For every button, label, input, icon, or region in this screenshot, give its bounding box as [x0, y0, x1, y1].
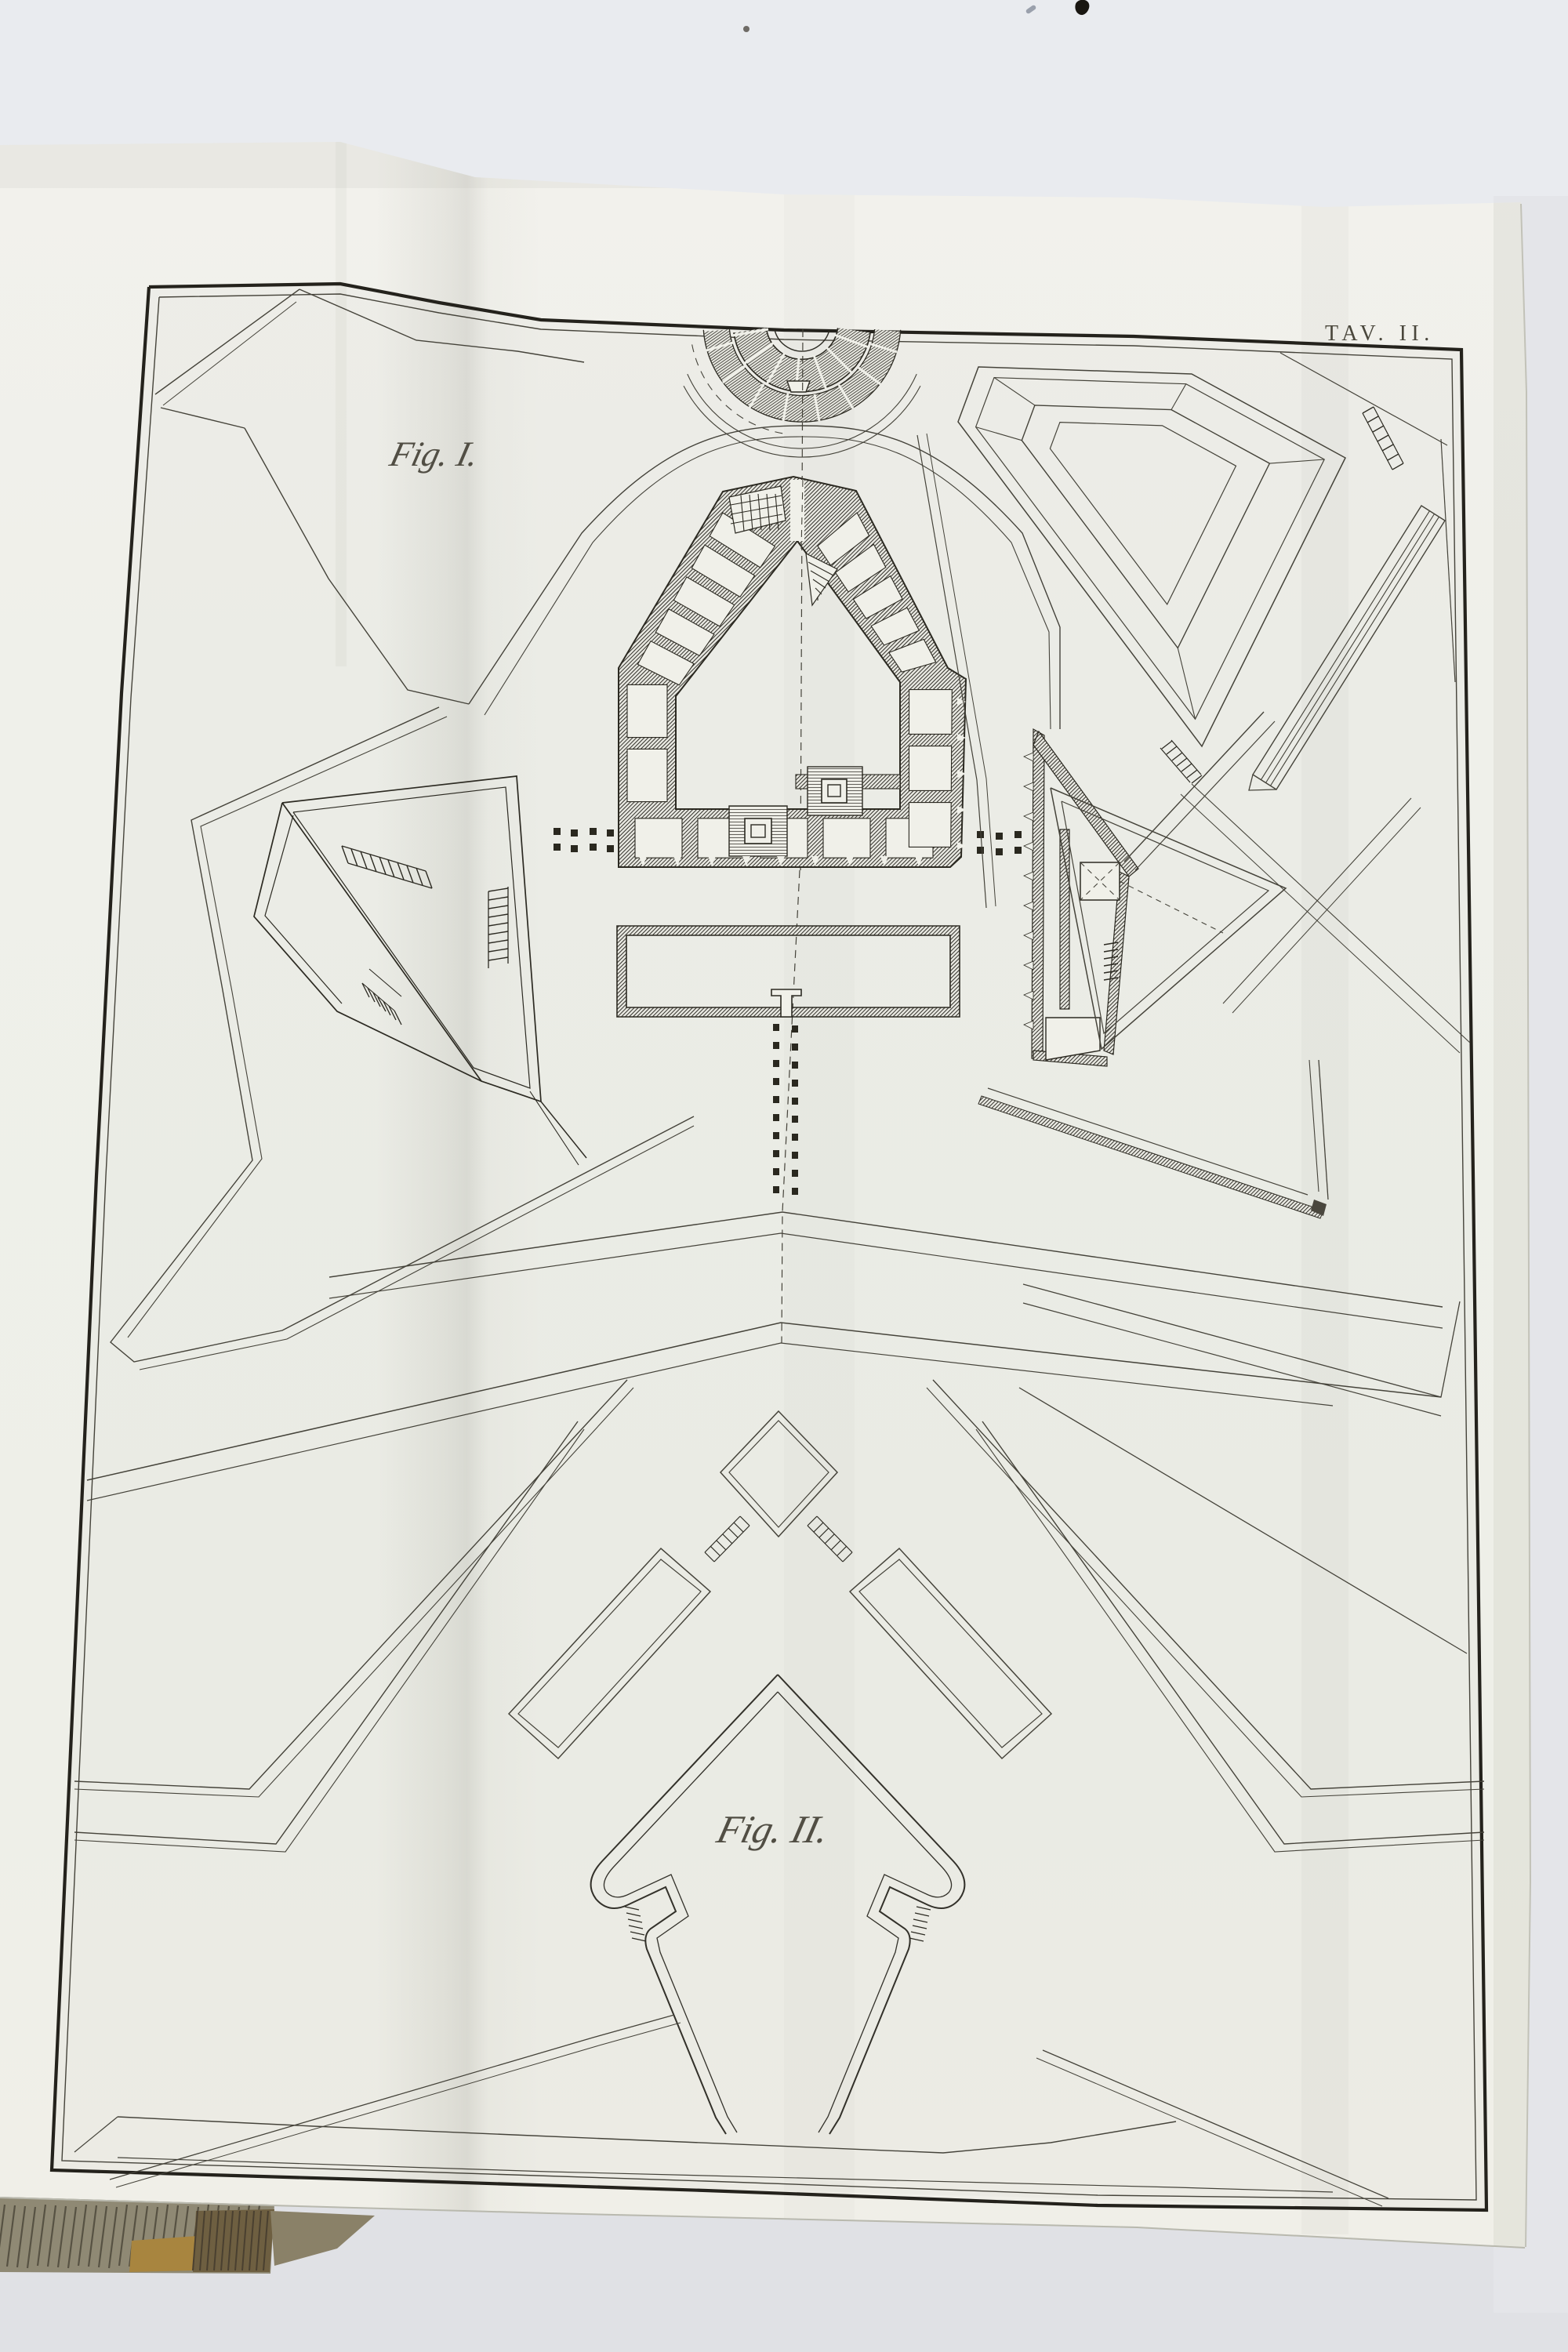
svg-text:Fig. I.: Fig. I.	[386, 434, 484, 474]
svg-text:TAV. II.: TAV. II.	[1325, 321, 1435, 346]
svg-text:Fig. II.: Fig. II.	[712, 1808, 833, 1851]
